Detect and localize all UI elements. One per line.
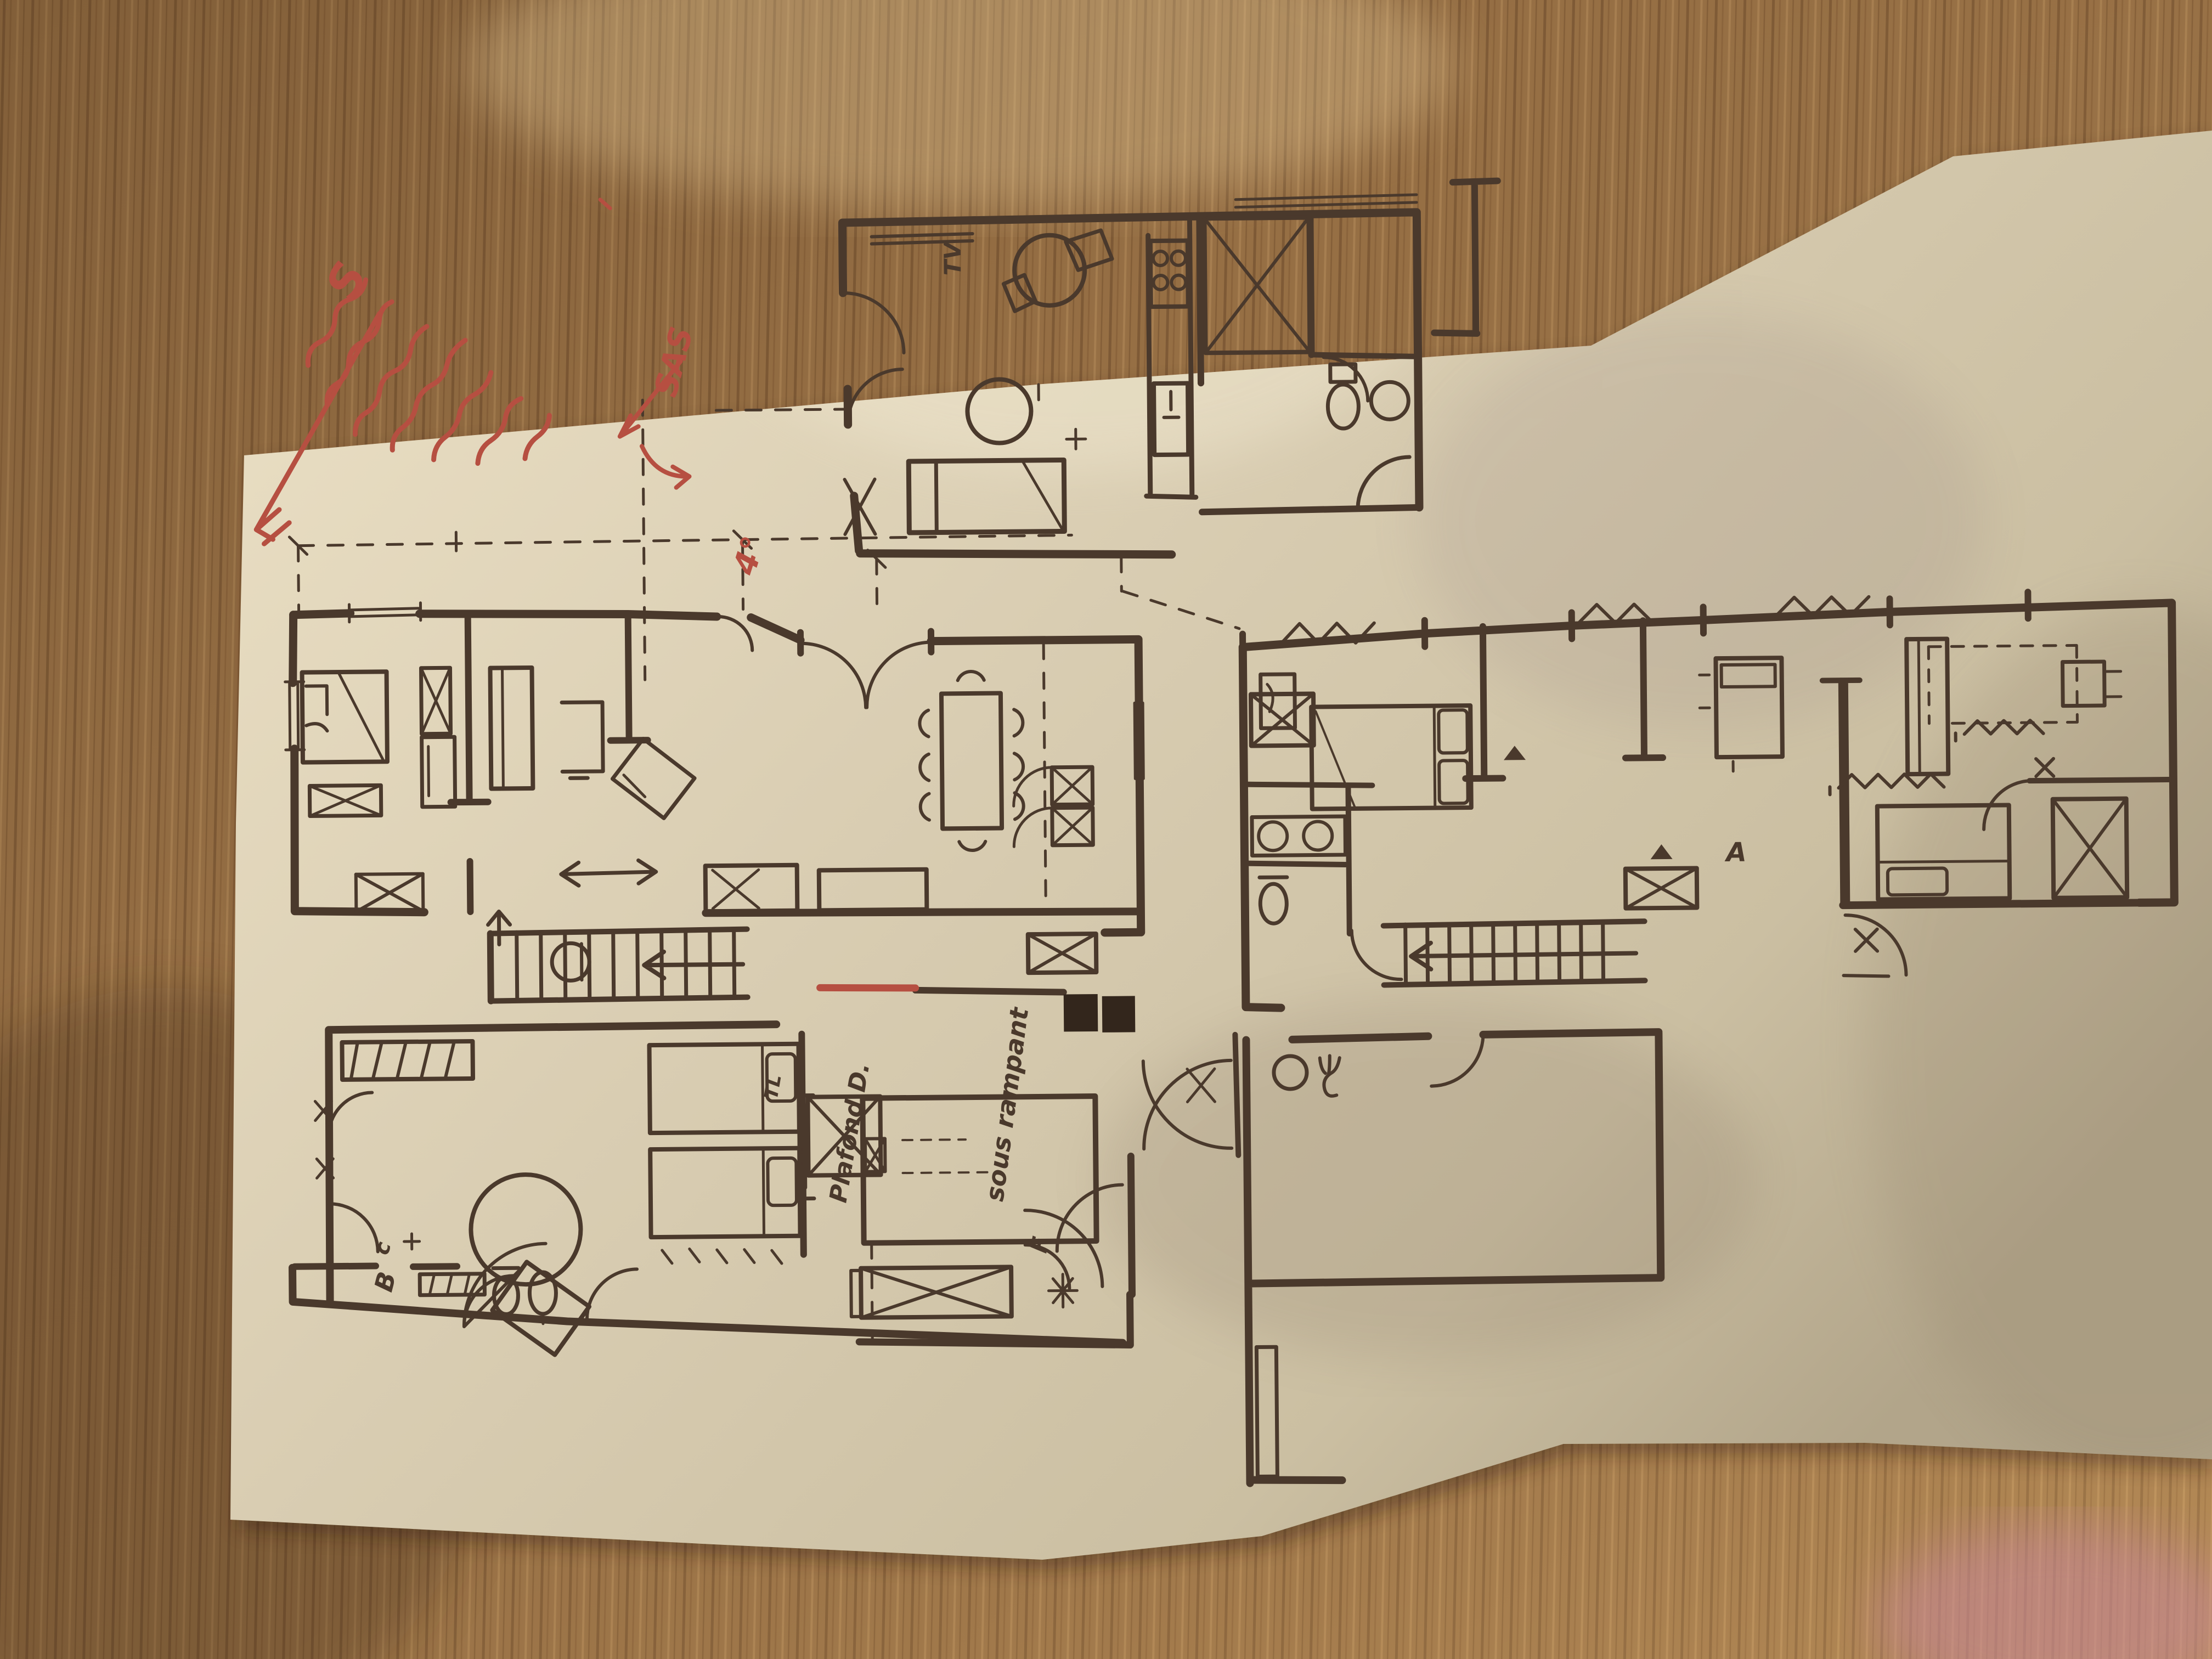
chimney-dark-square — [1064, 994, 1098, 1032]
a-label: A — [1724, 837, 1747, 868]
asterisk-mark — [1048, 1274, 1077, 1307]
tl-label: TL — [760, 1073, 786, 1101]
red-wall-highlight — [820, 987, 916, 989]
chimney-dark-square — [1102, 996, 1136, 1032]
photo-floor-plan-sketch: TV — [0, 0, 2212, 1659]
sketch-canvas: TV — [0, 0, 2212, 1659]
tv-label: TV — [939, 240, 967, 275]
